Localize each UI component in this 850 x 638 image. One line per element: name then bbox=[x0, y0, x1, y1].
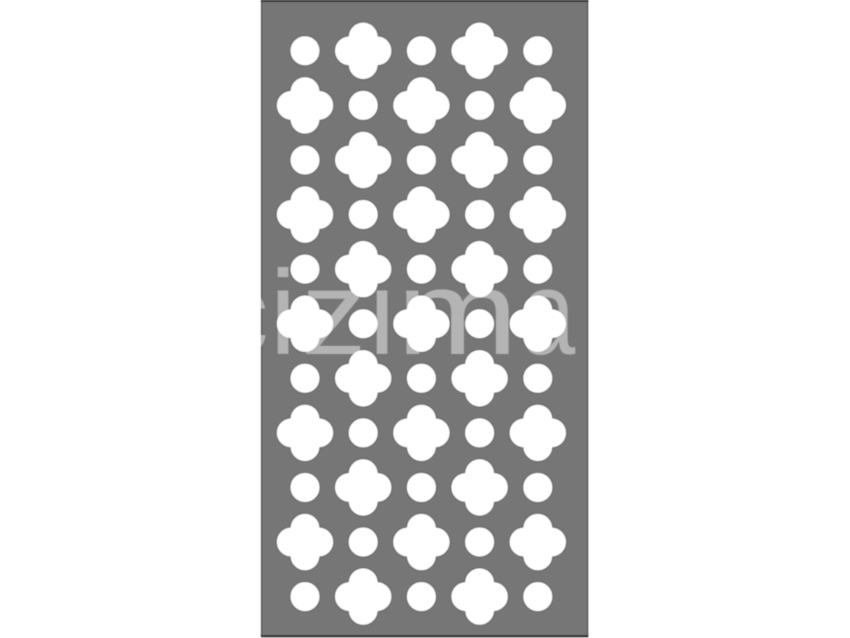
svg-text:ç: ç bbox=[209, 246, 269, 380]
svg-text:a: a bbox=[520, 247, 576, 380]
svg-text:i: i bbox=[270, 246, 297, 380]
svg-text:z: z bbox=[301, 245, 367, 379]
svg-text:x: x bbox=[590, 246, 650, 380]
svg-text:i: i bbox=[369, 246, 396, 380]
svg-text:m: m bbox=[396, 246, 518, 380]
